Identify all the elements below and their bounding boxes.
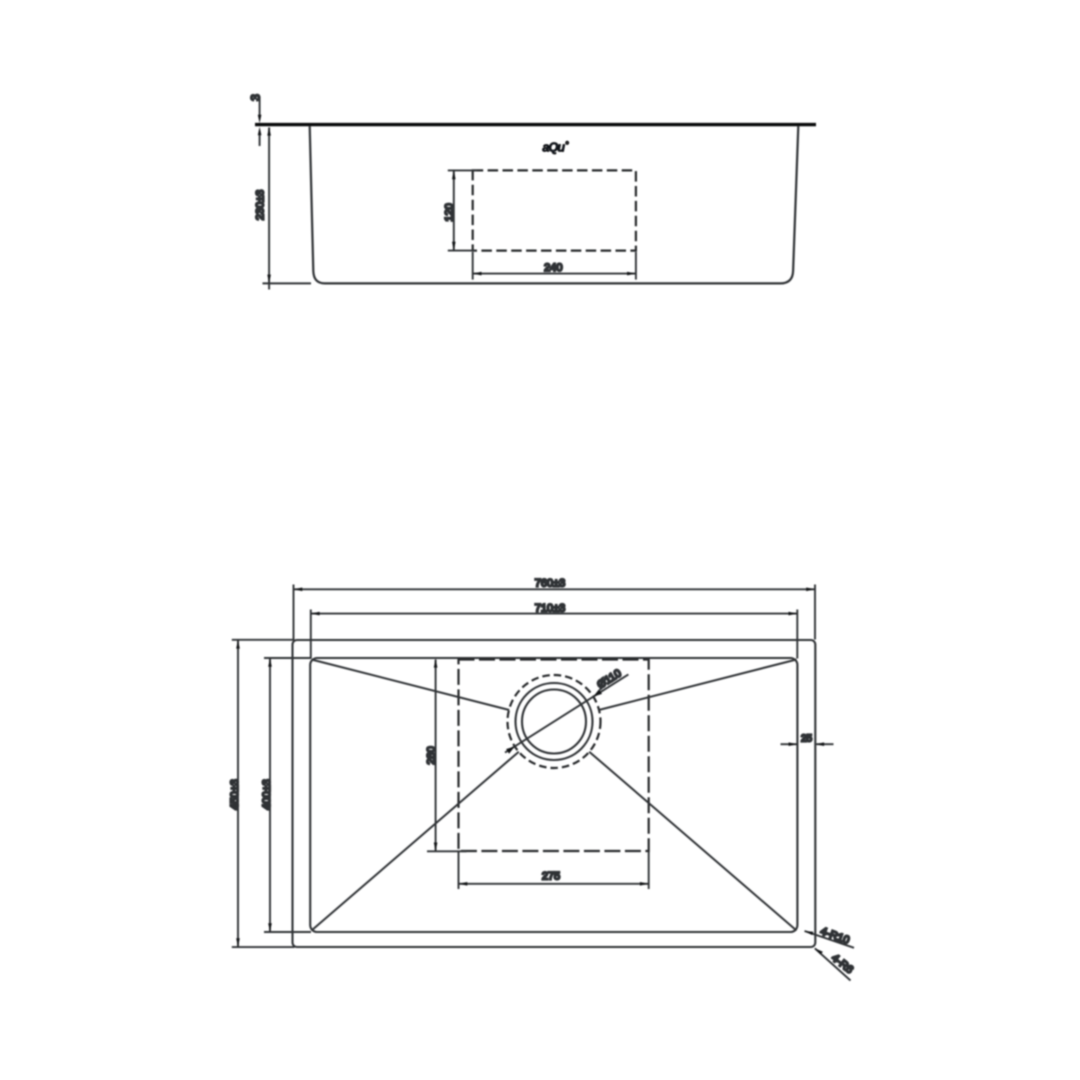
svg-text:240: 240 bbox=[544, 262, 562, 274]
svg-text:280: 280 bbox=[425, 746, 437, 764]
svg-text:120: 120 bbox=[444, 203, 456, 221]
svg-text:400±3: 400±3 bbox=[261, 779, 273, 810]
svg-text:230±3: 230±3 bbox=[255, 190, 267, 221]
svg-text:3: 3 bbox=[248, 94, 262, 101]
svg-text:275: 275 bbox=[542, 870, 560, 882]
svg-text:450±3: 450±3 bbox=[229, 779, 241, 810]
svg-text:710±3: 710±3 bbox=[535, 602, 566, 614]
svg-text:4-R10: 4-R10 bbox=[819, 925, 851, 947]
svg-text:760±3: 760±3 bbox=[535, 578, 566, 590]
svg-text:aQu˚: aQu˚ bbox=[542, 141, 569, 155]
svg-text:25: 25 bbox=[801, 734, 813, 745]
svg-text:Ø110: Ø110 bbox=[595, 667, 623, 691]
